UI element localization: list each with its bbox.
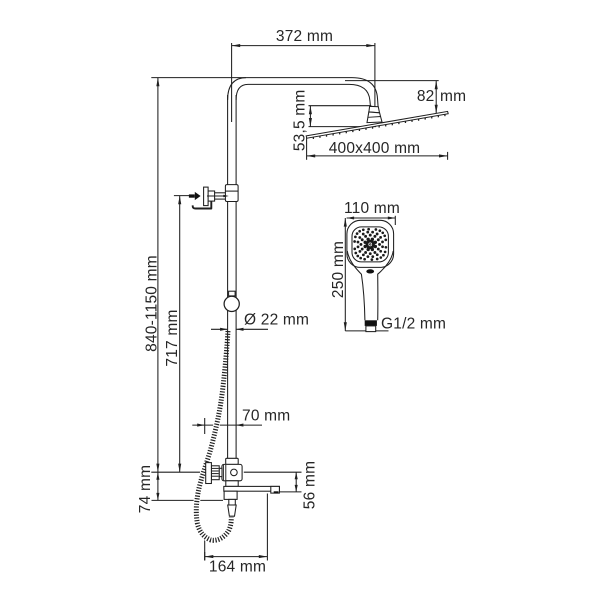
svg-text:400x400 mm: 400x400 mm xyxy=(329,140,421,157)
svg-text:372 mm: 372 mm xyxy=(276,28,333,45)
svg-text:250 mm: 250 mm xyxy=(330,241,347,298)
svg-text:56 mm: 56 mm xyxy=(301,461,318,509)
svg-text:82: 82 xyxy=(417,88,435,105)
svg-text:Ø 22 mm: Ø 22 mm xyxy=(244,311,309,328)
svg-text:110 mm: 110 mm xyxy=(344,200,400,217)
svg-text:G1/2 mm: G1/2 mm xyxy=(381,315,446,332)
svg-text:mm: mm xyxy=(440,88,466,105)
svg-text:717 mm: 717 mm xyxy=(164,309,181,366)
svg-text:164 mm: 164 mm xyxy=(209,559,266,576)
svg-text:53,5 mm: 53,5 mm xyxy=(292,89,309,151)
svg-text:70 mm: 70 mm xyxy=(242,407,290,424)
